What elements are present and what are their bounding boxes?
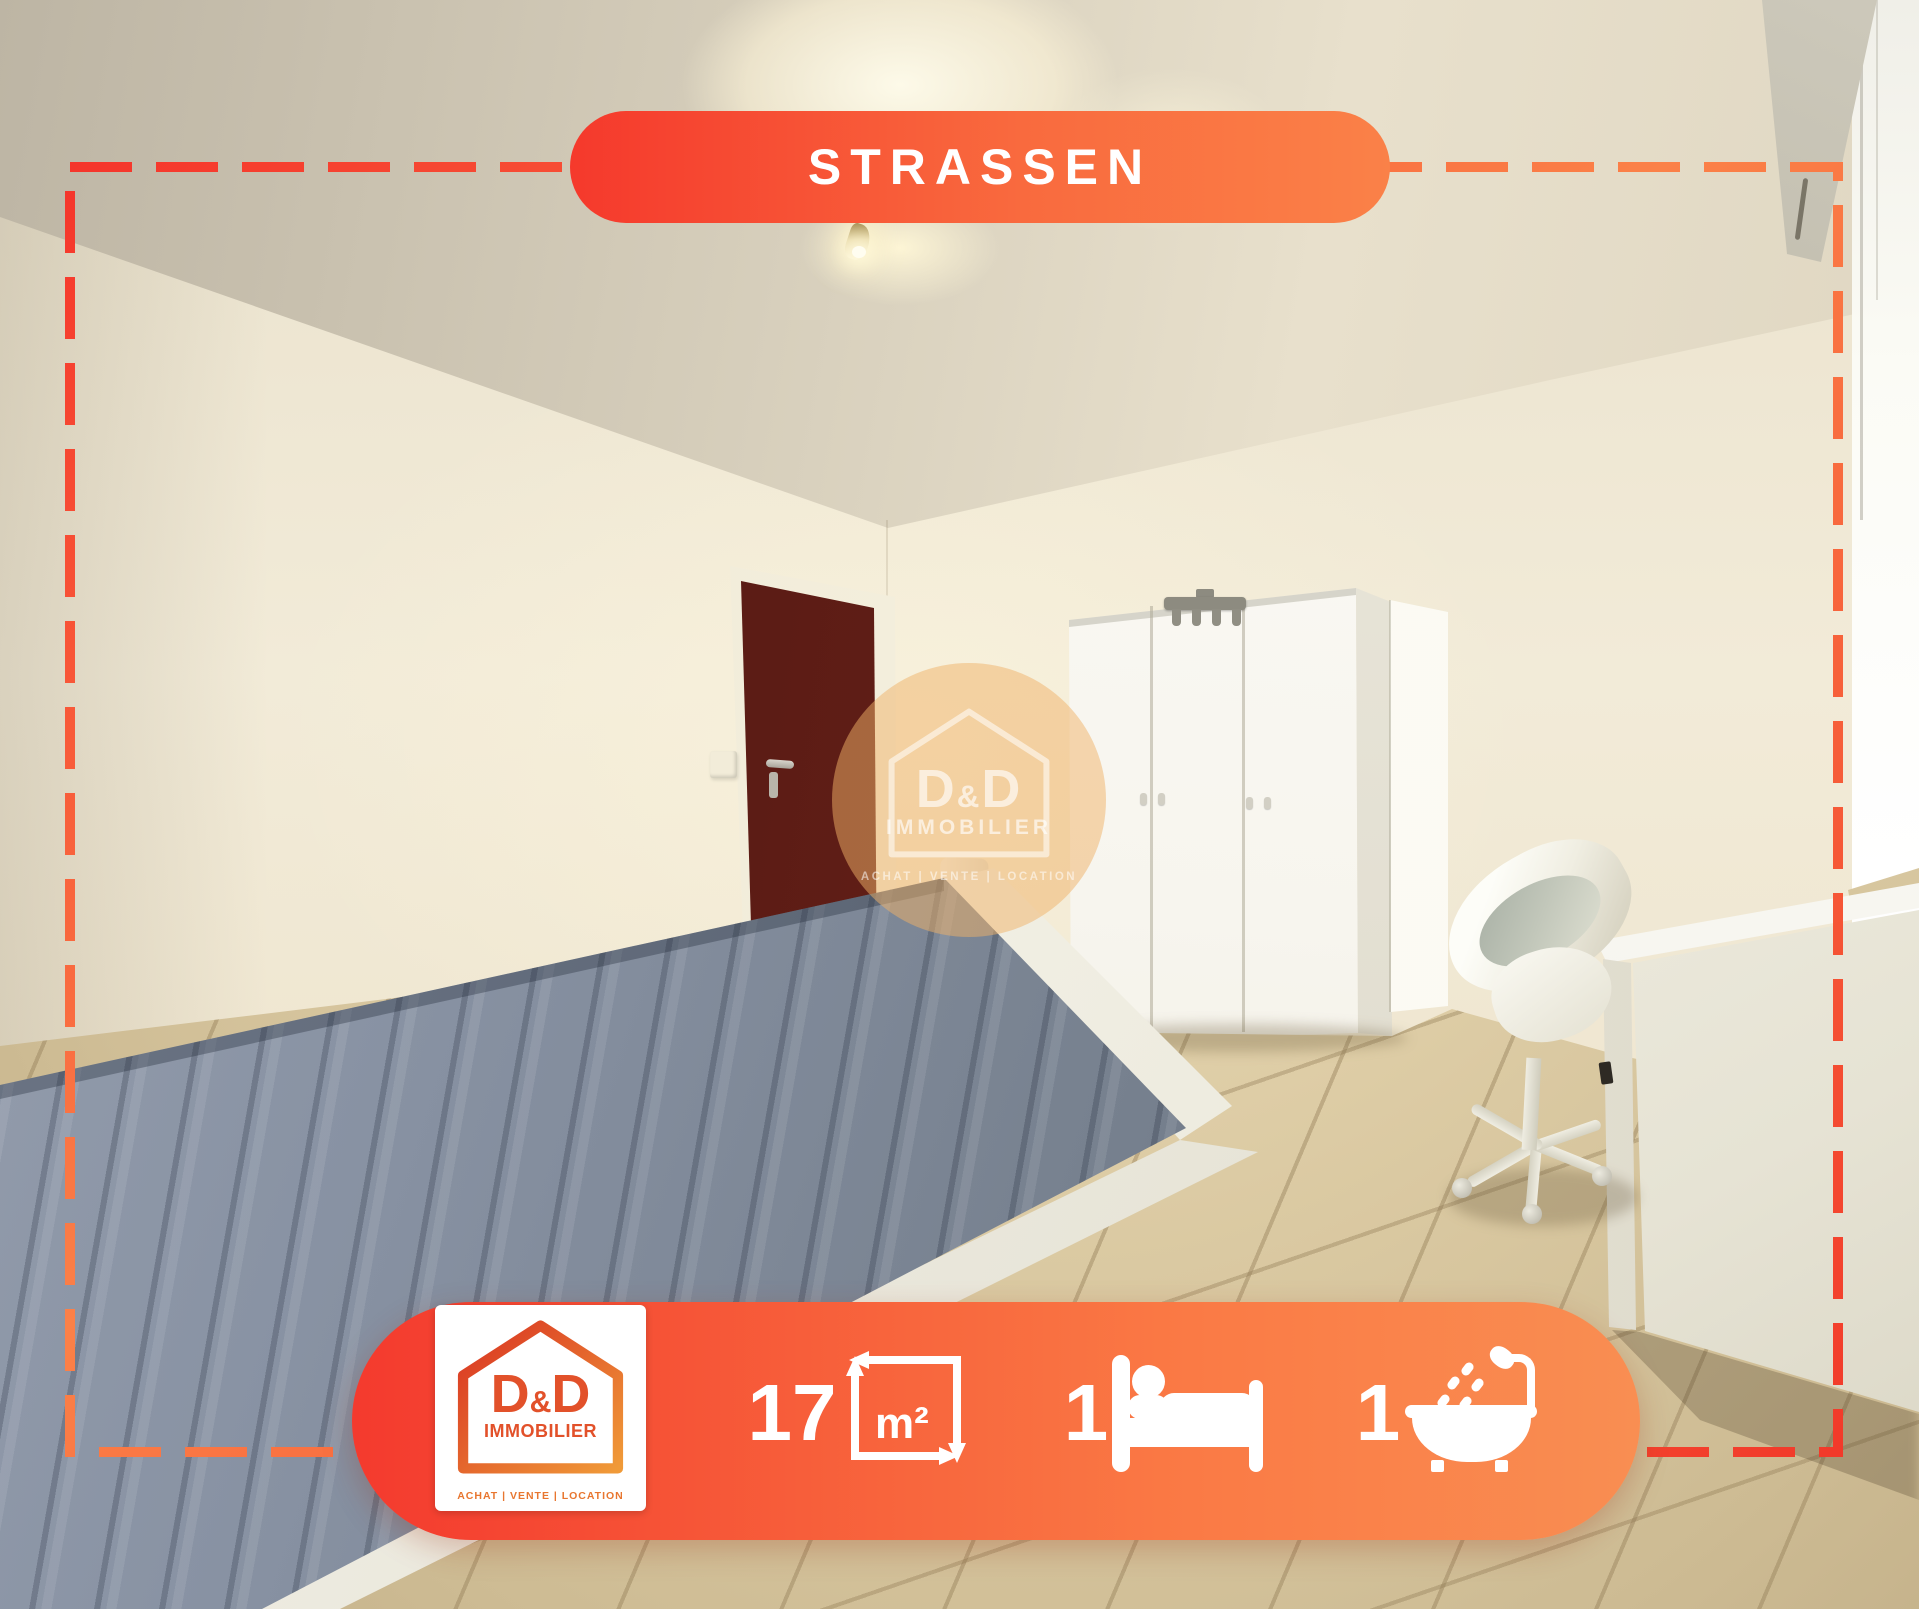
agency-logo-card: D&D IMMOBILIER ACHAT | VENTE | LOCATION	[435, 1305, 646, 1511]
bed-icon	[1112, 1355, 1263, 1472]
agency-division: IMMOBILIER	[435, 1421, 646, 1442]
location-banner: STRASSEN	[570, 111, 1390, 223]
agency-tagline: ACHAT | VENTE | LOCATION	[435, 1490, 646, 1502]
svg-text:m²: m²	[875, 1399, 929, 1448]
stats-banner: D&D IMMOBILIER ACHAT | VENTE | LOCATION …	[352, 1302, 1640, 1540]
dimensions-icon: m²	[845, 1350, 967, 1465]
location-label: STRASSEN	[808, 138, 1152, 196]
bathtub-icon	[1405, 1348, 1537, 1472]
area-value: 17	[732, 1355, 852, 1470]
real-estate-post: D&D IMMOBILIER ACHAT | VENTE | LOCATION …	[0, 0, 1919, 1609]
agency-brand: D&D	[435, 1363, 646, 1425]
